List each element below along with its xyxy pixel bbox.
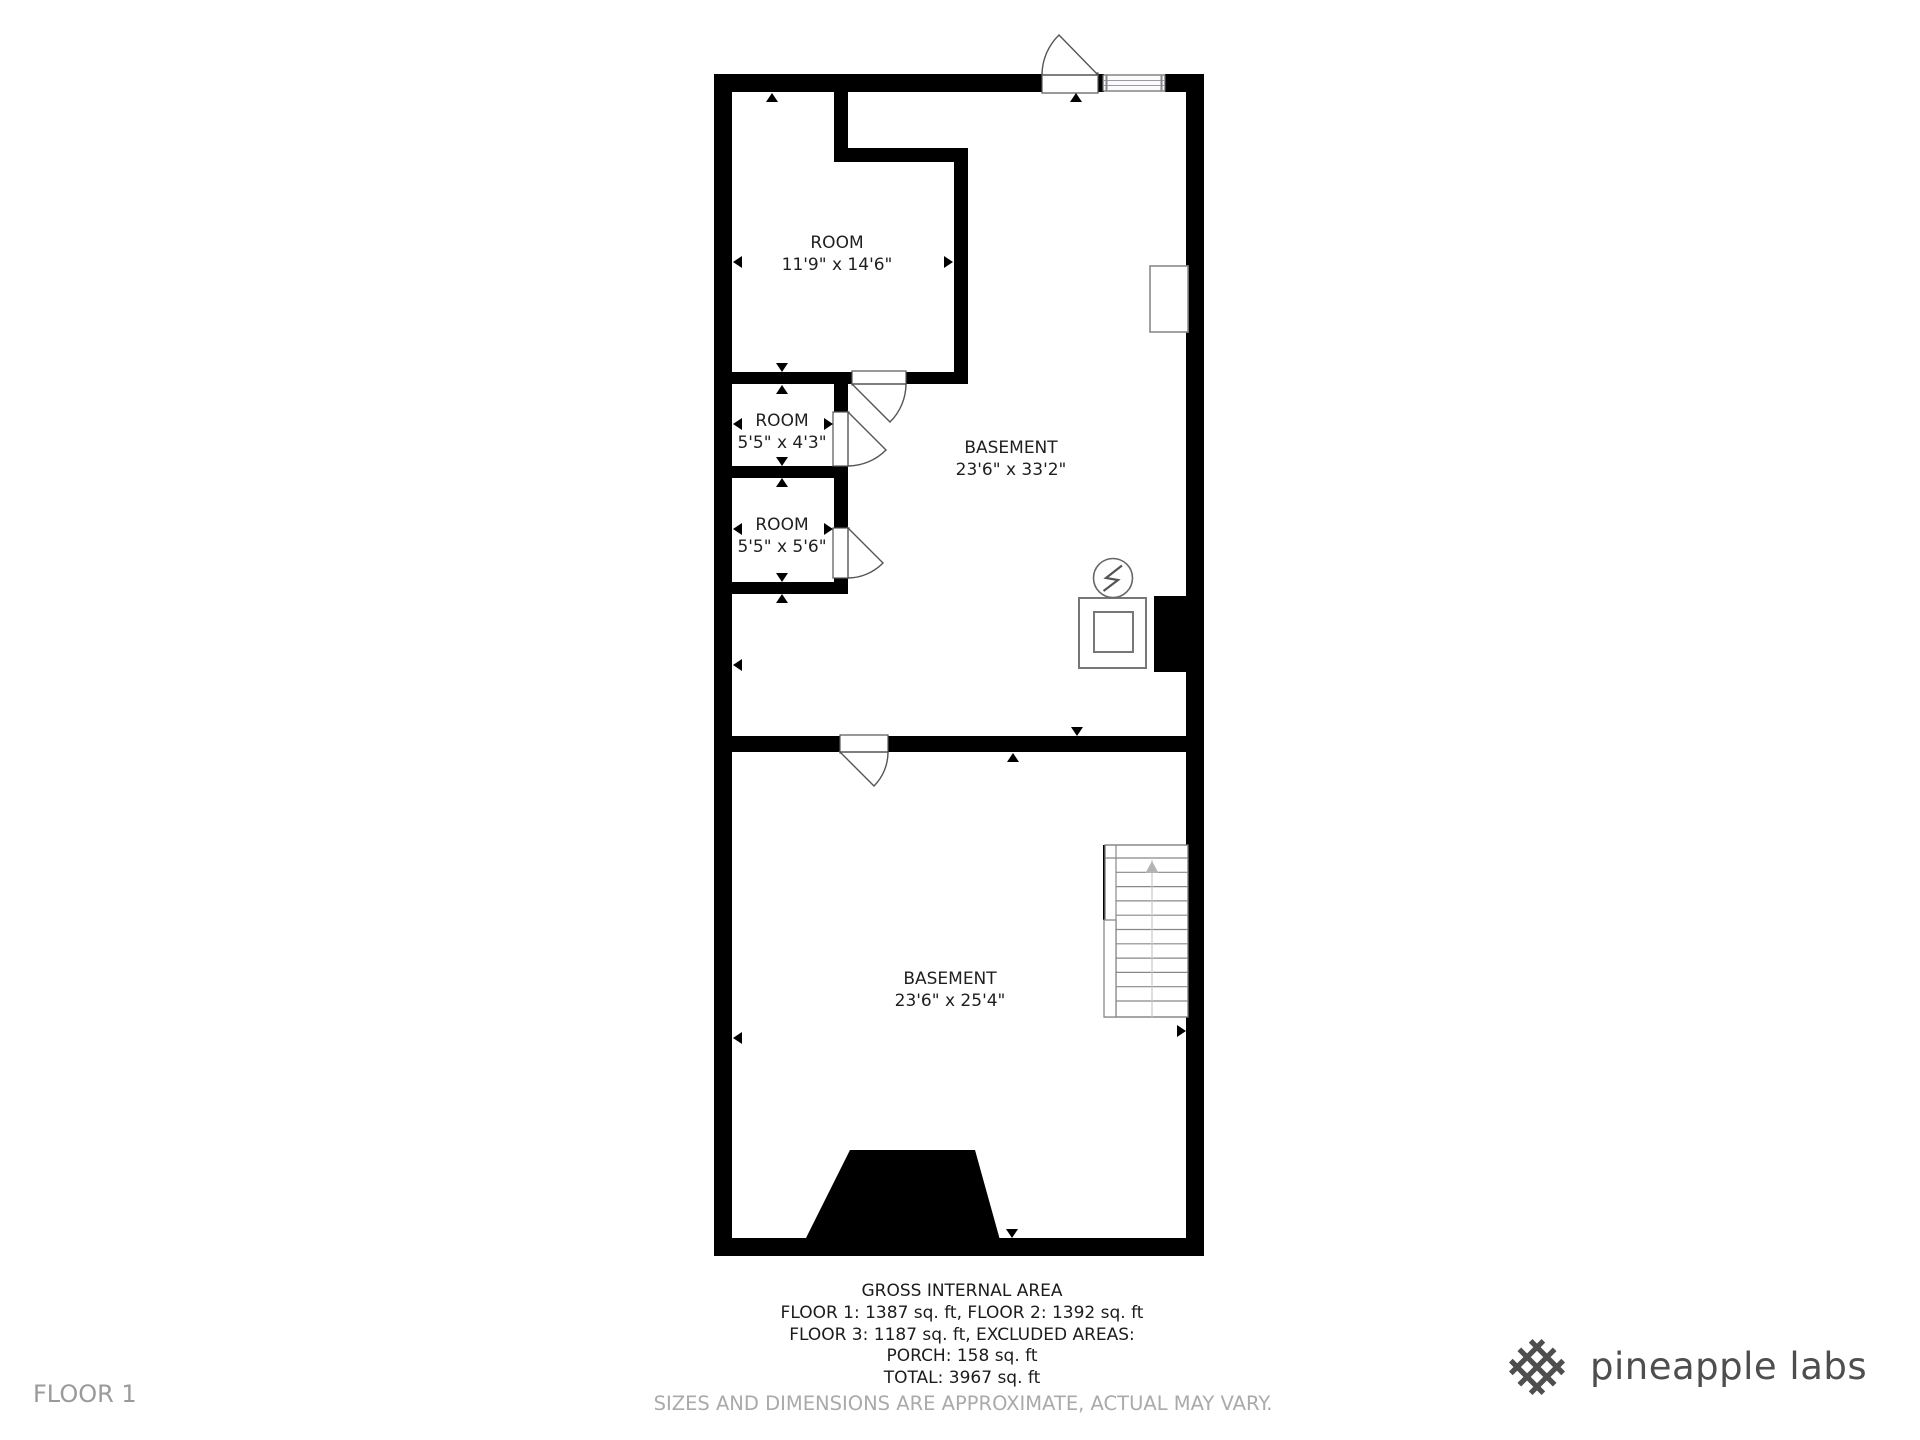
electrical-meter-circle xyxy=(1094,559,1133,598)
interior-walls xyxy=(714,92,1204,920)
interior-doors xyxy=(833,371,906,786)
staircase xyxy=(1104,845,1188,1017)
basement2-label: BASEMENT 23'6" x 25'4" xyxy=(895,968,1006,1012)
area-summary: GROSS INTERNAL AREA FLOOR 1: 1387 sq. ft… xyxy=(781,1281,1144,1390)
floor-plan-page: ROOM 11'9" x 14'6" ROOM 5'5" x 4'3" ROOM… xyxy=(0,0,1920,1440)
room1-label: ROOM 11'9" x 14'6" xyxy=(782,232,893,276)
dimension-arrow xyxy=(766,93,778,102)
dimension-arrow xyxy=(776,478,788,487)
wall-exterior-right xyxy=(1186,74,1204,1256)
basement2-dimensions: 23'6" x 25'4" xyxy=(895,990,1006,1012)
room1-door-leaf xyxy=(852,371,906,385)
room2-name: ROOM xyxy=(755,411,808,431)
staircase-handrail xyxy=(1104,920,1116,1017)
middle-door-leaf xyxy=(840,735,888,753)
wall-exterior-bottom xyxy=(714,1238,1204,1256)
floor-plan-drawing xyxy=(0,0,1920,1440)
window xyxy=(1103,75,1165,91)
room3-door-leaf xyxy=(833,528,849,578)
wall-middle-right-segment xyxy=(888,736,1204,752)
wall-room1-right xyxy=(954,148,968,384)
wall-room1-jog-horizontal xyxy=(834,148,968,162)
dimension-arrow xyxy=(776,573,788,582)
dimension-arrow xyxy=(776,594,788,603)
dimension-arrow xyxy=(733,256,742,268)
dimension-arrow xyxy=(1007,753,1019,762)
area-summary-line4: TOTAL: 3967 sq. ft xyxy=(781,1368,1144,1390)
furnace-inner-box xyxy=(1094,612,1133,652)
entry-door-leaf xyxy=(1042,73,1098,93)
room1-door-swing-icon xyxy=(852,384,906,422)
area-summary-line2: FLOOR 3: 1187 sq. ft, EXCLUDED AREAS: xyxy=(781,1325,1144,1347)
basement1-label: BASEMENT 23'6" x 33'2" xyxy=(956,437,1067,481)
wall-room3-right-upper xyxy=(834,478,848,528)
room2-door-leaf xyxy=(833,412,849,466)
dimension-arrow xyxy=(944,256,953,268)
area-summary-title: GROSS INTERNAL AREA xyxy=(781,1281,1144,1303)
entry-door xyxy=(1042,35,1098,93)
wall-exterior-top-left-segment xyxy=(714,74,1042,92)
chimney-recess xyxy=(1150,266,1188,332)
room2-dimensions: 5'5" x 4'3" xyxy=(737,432,826,454)
pineapple-lattice-icon xyxy=(1504,1328,1570,1404)
furnace xyxy=(1079,559,1146,669)
room3-label: ROOM 5'5" x 5'6" xyxy=(737,514,826,558)
area-summary-line1: FLOOR 1: 1387 sq. ft, FLOOR 2: 1392 sq. … xyxy=(781,1303,1144,1325)
room3-dimensions: 5'5" x 5'6" xyxy=(737,536,826,558)
wall-right-protrusion xyxy=(1154,596,1188,672)
wall-middle-left-segment xyxy=(714,736,840,752)
wall-exterior-left xyxy=(714,74,732,1256)
floor-number-label: FLOOR 1 xyxy=(33,1380,137,1408)
dimension-arrow xyxy=(733,1032,742,1044)
brand-logo: pineapple labs xyxy=(1504,1326,1867,1406)
dimension-arrow xyxy=(776,385,788,394)
dimension-arrow xyxy=(1071,727,1083,736)
wall-room2-bottom xyxy=(714,466,848,478)
dimension-arrow xyxy=(776,457,788,466)
wall-room1-bottom-left xyxy=(714,372,852,384)
room2-label: ROOM 5'5" x 4'3" xyxy=(737,410,826,454)
dimension-arrow xyxy=(1177,1025,1186,1037)
disclaimer-text: SIZES AND DIMENSIONS ARE APPROXIMATE, AC… xyxy=(654,1392,1273,1415)
porch-steps-solid xyxy=(805,1150,1000,1240)
wall-room2-right-upper xyxy=(834,372,848,412)
entry-door-swing-icon xyxy=(1042,35,1098,75)
wall-room3-bottom xyxy=(714,582,848,594)
dimension-arrow xyxy=(776,363,788,372)
dimension-arrow xyxy=(733,659,742,671)
basement1-name: BASEMENT xyxy=(964,438,1057,458)
staircase-outline xyxy=(1105,845,1188,1017)
basement1-dimensions: 23'6" x 33'2" xyxy=(956,459,1067,481)
brand-name: pineapple labs xyxy=(1590,1345,1867,1388)
room1-dimensions: 11'9" x 14'6" xyxy=(782,254,893,276)
room3-door-swing-icon xyxy=(848,528,883,578)
window-frame xyxy=(1103,75,1165,91)
room3-name: ROOM xyxy=(755,515,808,535)
room2-door-swing-icon xyxy=(848,412,886,466)
middle-door-swing-icon xyxy=(840,752,888,786)
area-summary-line3: PORCH: 158 sq. ft xyxy=(781,1346,1144,1368)
basement2-name: BASEMENT xyxy=(903,969,996,989)
room1-name: ROOM xyxy=(810,233,863,253)
dimension-arrow xyxy=(1006,1229,1018,1238)
dimension-arrow xyxy=(1070,93,1082,102)
wall-room1-bottom-right xyxy=(906,372,968,384)
